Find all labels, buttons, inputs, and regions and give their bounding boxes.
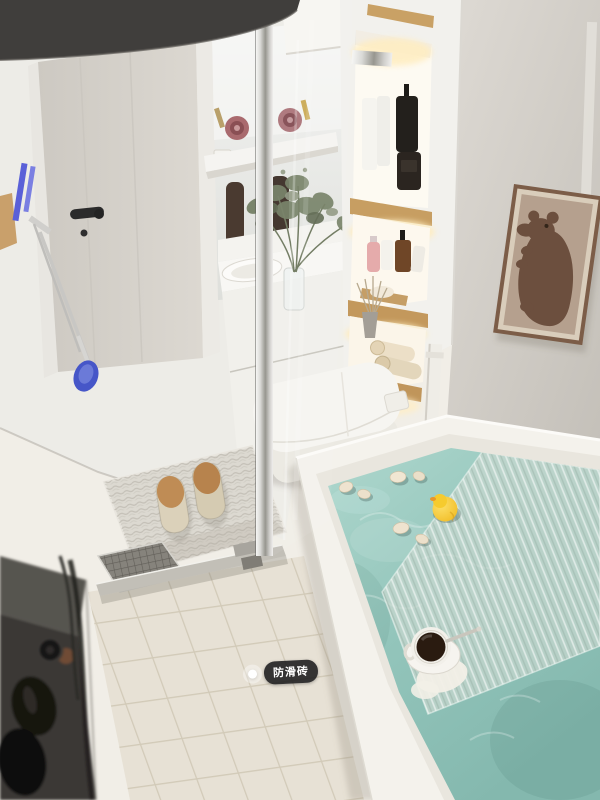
tag-label: 防滑砖	[263, 659, 318, 685]
tag-marker-dot	[248, 669, 257, 678]
bathroom-scene: 防滑砖	[0, 0, 600, 800]
storage-cart	[0, 556, 96, 800]
bathroom-door	[28, 38, 220, 378]
glass-top-clamp	[352, 50, 393, 67]
chrome-post	[256, 0, 273, 556]
anti-slip-tile-tag[interactable]: 防滑砖	[247, 659, 318, 686]
